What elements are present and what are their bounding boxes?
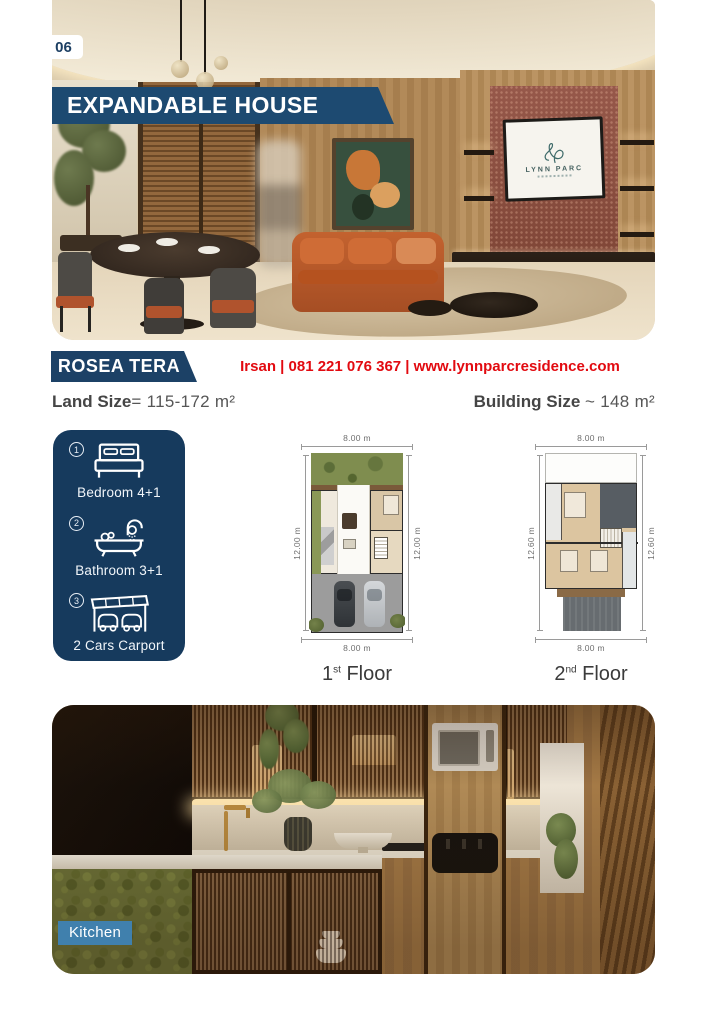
land-size-label: Land Size [52, 392, 131, 411]
dining-chair [210, 268, 256, 328]
plan-row: 12.00 m [292, 451, 422, 635]
page-title: EXPANDABLE HOUSE [67, 92, 318, 119]
wall-shelf [464, 196, 494, 201]
building-size-value: ~ 148 m² [585, 392, 655, 411]
dining-plan [343, 539, 356, 549]
building-size-label: Building Size [474, 392, 581, 411]
bed-plan [560, 550, 578, 572]
car-silver [364, 581, 385, 627]
floor-plan-2: 8.00 m 12.60 m 12 [524, 433, 658, 686]
roof-plan [600, 484, 636, 528]
art-shape [370, 182, 400, 208]
dim-width-top: 8.00 m [577, 433, 605, 443]
bathroom-plan [622, 532, 636, 588]
side-garden [312, 491, 321, 575]
coffee-table [450, 292, 538, 318]
driveway [311, 574, 403, 633]
tv-logo-subline [538, 174, 572, 177]
amenity-number: 3 [69, 593, 84, 608]
dimension-line [535, 446, 647, 447]
garden-area [311, 453, 403, 489]
dim-depth-left: 12.60 m [526, 527, 536, 560]
building-size: Building Size ~ 148 m² [474, 392, 655, 412]
floor-plan-2-drawing [543, 451, 639, 635]
pendant-cord [180, 0, 182, 62]
sofa-seat [298, 270, 438, 284]
floor-plan-1: 8.00 m 12.00 m [290, 433, 424, 686]
amenity-number: 1 [69, 442, 84, 457]
dimension-line [642, 455, 643, 631]
dim-depth-right: 12.60 m [646, 527, 656, 560]
title-banner: EXPANDABLE HOUSE [52, 87, 394, 124]
car-dark [334, 581, 355, 627]
bed-plan [383, 495, 399, 515]
dimension-line [535, 639, 647, 640]
unit-name: ROSEA TERA [58, 356, 180, 377]
dim-width-bottom: 8.00 m [343, 643, 371, 653]
floor-word: Floor [577, 663, 628, 685]
dinnerware [156, 238, 178, 246]
dim-depth-right: 12.00 m [412, 527, 422, 560]
amenity-carport: 3 2 Cars Carport [61, 591, 177, 653]
floor-ordinal: st [333, 664, 341, 675]
land-size-value: = 115-172 m² [131, 392, 235, 411]
floor-number: 1 [322, 663, 333, 685]
amenity-bedroom: 1 Bedroom 4+1 [61, 442, 177, 500]
side-table [408, 300, 452, 316]
floor-plan-1-drawing [309, 451, 405, 635]
bathroom-plan [546, 484, 562, 540]
lot-outline [545, 453, 637, 483]
sofa-cushion [300, 238, 344, 264]
amenity-label: 2 Cars Carport [73, 638, 164, 653]
bush [390, 614, 405, 628]
contact-line[interactable]: Irsan | 081 221 076 367 | www.lynnparcre… [200, 351, 660, 382]
second-floor-rooms [545, 483, 637, 589]
balcony-edge [557, 589, 625, 597]
pendant-lamp [214, 56, 228, 70]
bedroom-plan [370, 491, 402, 531]
amenity-label: Bathroom 3+1 [75, 563, 163, 578]
dim-width-bottom: 8.00 m [577, 643, 605, 653]
bathtub-icon [91, 514, 147, 560]
pendant-cord [204, 0, 206, 74]
unit-name-badge: ROSEA TERA [51, 351, 197, 382]
chair-leg [88, 306, 91, 332]
wall-shelf [464, 150, 494, 155]
carport-marble [321, 527, 334, 565]
roof-deck [563, 597, 621, 631]
sofa-cushion [348, 238, 392, 264]
dining-chair-seat [146, 306, 182, 318]
bush [309, 618, 324, 632]
dimension-line [301, 446, 413, 447]
tree-trunk [86, 185, 90, 240]
stairs-plan [374, 537, 388, 559]
photo-shading [52, 705, 655, 974]
ground-floor-rooms [311, 490, 403, 574]
amenity-label: Bedroom 4+1 [77, 485, 161, 500]
floor-ordinal: nd [565, 664, 576, 675]
land-size: Land Size= 115-172 m² [52, 392, 235, 412]
dimension-line [408, 455, 409, 631]
wall-shelf [620, 232, 654, 237]
brochure-page: LYNN PARC 0 [0, 0, 707, 1024]
lynn-parc-monogram-icon [540, 141, 567, 164]
chair-leg [60, 306, 63, 332]
dining-chair-seat [212, 300, 254, 313]
floor-plan-1-label: 1st Floor [322, 663, 392, 686]
floor-plan-2-label: 2nd Floor [554, 663, 627, 686]
amenity-number: 2 [69, 516, 84, 531]
stairs-plan [600, 528, 622, 548]
dimension-line [539, 455, 540, 631]
living-strip [337, 485, 370, 577]
amenity-bathroom: 2 Bathroom 3+1 [61, 514, 177, 578]
tv-screen: LYNN PARC [503, 116, 606, 201]
dining-chair [58, 252, 92, 300]
dimension-line [305, 455, 306, 631]
dim-depth-left: 12.00 m [292, 527, 302, 560]
page-number-badge: 06 [44, 35, 83, 59]
bed-plan [564, 492, 586, 518]
plan-row: 12.60 m 12.60 m [526, 451, 656, 635]
page-number: 06 [55, 39, 72, 56]
pendant-lamp [171, 60, 189, 78]
kitchen-label: Kitchen [58, 921, 132, 945]
bed-icon [91, 442, 147, 482]
tv-logo-text: LYNN PARC [525, 164, 583, 173]
dinnerware [118, 244, 140, 252]
floor-word: Floor [341, 663, 392, 685]
art-shape [352, 194, 374, 220]
dimension-line [301, 639, 413, 640]
living-room-photo: LYNN PARC [52, 0, 655, 340]
amenities-card: 1 Bedroom 4+1 [53, 430, 185, 661]
dinnerware [198, 246, 220, 254]
carport-icon [88, 591, 150, 635]
kitchen-photo: Kitchen [52, 705, 655, 974]
bed-plan [590, 550, 608, 572]
abstract-artwork [332, 138, 414, 230]
floor-number: 2 [554, 663, 565, 685]
wall-shelf [620, 186, 654, 191]
sofa-cushion [396, 238, 436, 264]
wall-shelf [620, 140, 654, 145]
dim-width-top: 8.00 m [343, 433, 371, 443]
kitchen-island-plan [342, 513, 357, 529]
